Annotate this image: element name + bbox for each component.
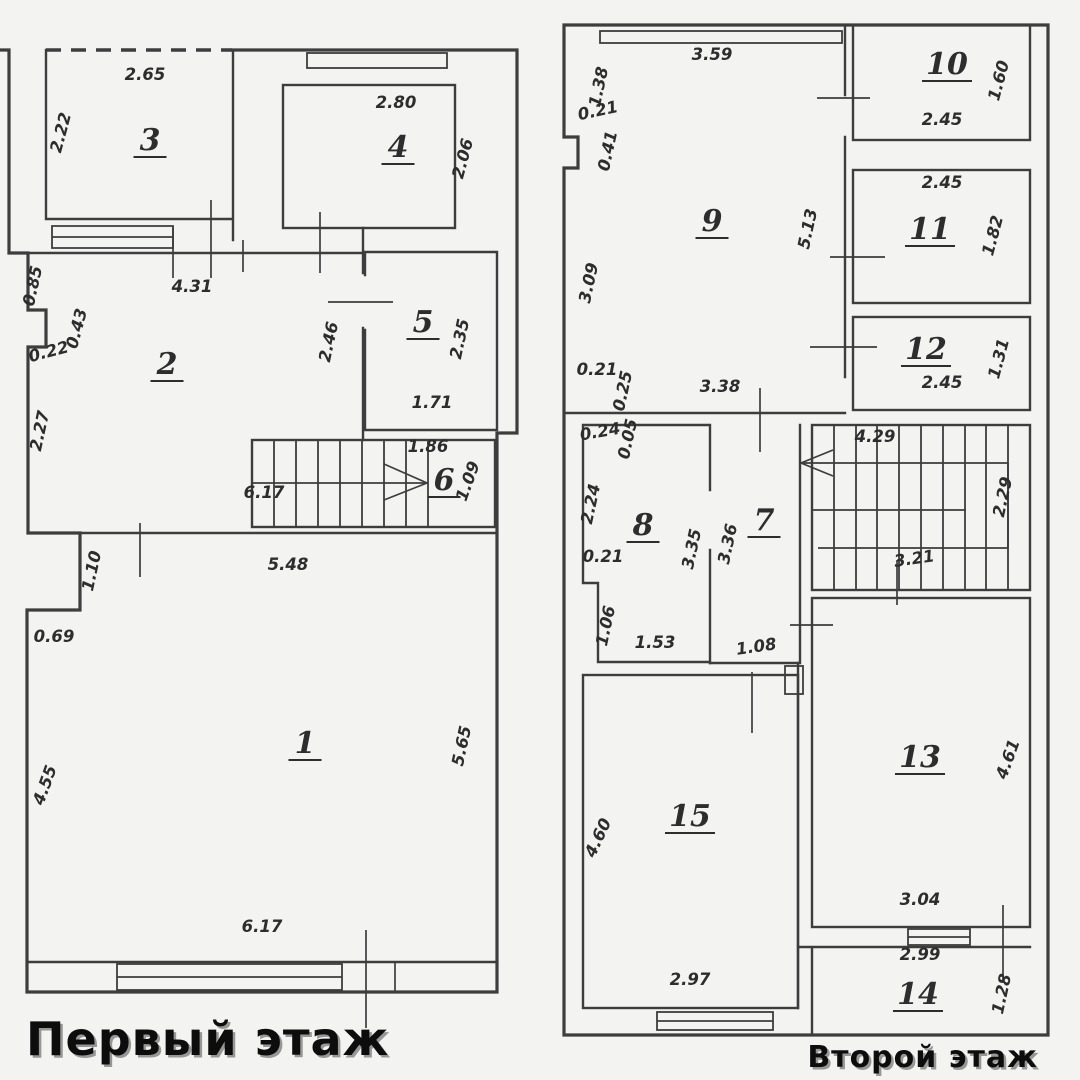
floor1-plan: 2.652.222.802.064.310.850.430.222.272.46… [0,50,517,1028]
dimension-label: 2.29 [989,475,1016,519]
room-number: 1 [295,726,316,761]
dimension-label: 3.36 [714,522,741,566]
room-number: 4 [388,130,409,165]
dimension-label: 2.45 [922,110,963,129]
dimension-label: 5.48 [268,555,309,574]
dimension-label: 1.60 [984,58,1013,102]
room-number: 11 [909,212,951,247]
window-bottom-floor2 [657,1012,773,1030]
room-number: 15 [669,799,711,834]
dimension-label: 5.65 [448,724,475,768]
room-number: 8 [632,508,654,543]
dimension-label: 4.29 [854,427,896,446]
dimension-label: 1.28 [988,972,1015,1016]
dimension-label: 0.41 [594,129,621,173]
floor1-walls [0,50,517,992]
dimension-label: 4.61 [992,737,1024,783]
dimension-label: 3.59 [692,45,733,64]
dimension-label: 2.27 [26,408,53,452]
room-number: 6 [434,463,455,498]
dimension-label: 1.71 [412,393,453,412]
dimension-label: 2.22 [46,110,75,154]
dimension-label: 4.31 [171,277,213,296]
dimension-label: 0.85 [19,264,46,308]
dimension-label: 3.04 [900,890,941,909]
window-13-14 [908,929,970,945]
dimension-label: 3.35 [678,527,705,571]
dimension-label: 0.21 [583,547,624,566]
dimension-label: 2.65 [125,65,166,84]
window-bottom-floor1 [117,964,342,990]
dimension-label: 3.09 [575,261,602,305]
dimension-label: 2.97 [670,970,711,989]
dimension-label: 0.24 [578,419,621,445]
floor2-title: Второй этаж [807,1040,1038,1075]
room-number: 9 [702,204,723,239]
dimension-label: 0.21 [576,97,620,124]
room-number: 2 [156,347,178,382]
dimension-label: 6.17 [244,483,285,502]
dimension-label: 1.53 [635,633,676,652]
dimension-label: 4.60 [580,815,615,861]
floor2-plan: 3.591.380.210.413.095.131.602.452.451.82… [564,25,1048,1035]
dimension-label: 2.99 [900,945,941,964]
dimension-label: 1.06 [592,604,619,648]
dimension-label: 4.55 [29,763,61,809]
dimension-label: 2.46 [315,320,342,364]
dimension-label: 1.31 [984,336,1013,380]
room-number: 7 [754,503,775,538]
room-number: 12 [905,332,947,367]
dimension-label: 1.10 [78,549,105,593]
room-number: 3 [140,123,161,158]
dimension-label: 1.86 [408,437,449,456]
dimension-label: 0.69 [34,627,75,646]
room-number: 10 [926,47,968,82]
dimension-label: 2.45 [922,173,963,192]
room-number: 13 [899,740,941,775]
dimension-label: 2.80 [376,93,417,112]
window-top-floor2 [600,31,842,43]
dimension-label: 2.24 [577,482,604,526]
floorplan-canvas: 2.652.222.802.064.310.850.430.222.272.46… [0,0,1080,1080]
floor1-labels: 2.652.222.802.064.310.850.430.222.272.46… [19,65,484,936]
floor1-ticks [140,200,395,1028]
dimension-label: 2.06 [448,136,477,180]
dimension-label: 1.82 [978,213,1007,257]
window-top-floor1 [307,53,447,68]
dimension-label: 5.13 [794,207,821,251]
dimension-label: 2.35 [446,317,473,361]
dimension-label: 6.17 [242,917,283,936]
dimension-label: 2.45 [922,373,963,392]
room-number: 14 [897,977,939,1012]
dimension-label: 3.38 [700,377,741,396]
dimension-label: 0.22 [26,337,70,366]
dimension-label: 0.21 [577,360,618,379]
floor1-title: Первый этаж [26,1012,389,1066]
dimension-label: 1.08 [735,634,778,658]
room-number: 5 [413,305,434,340]
